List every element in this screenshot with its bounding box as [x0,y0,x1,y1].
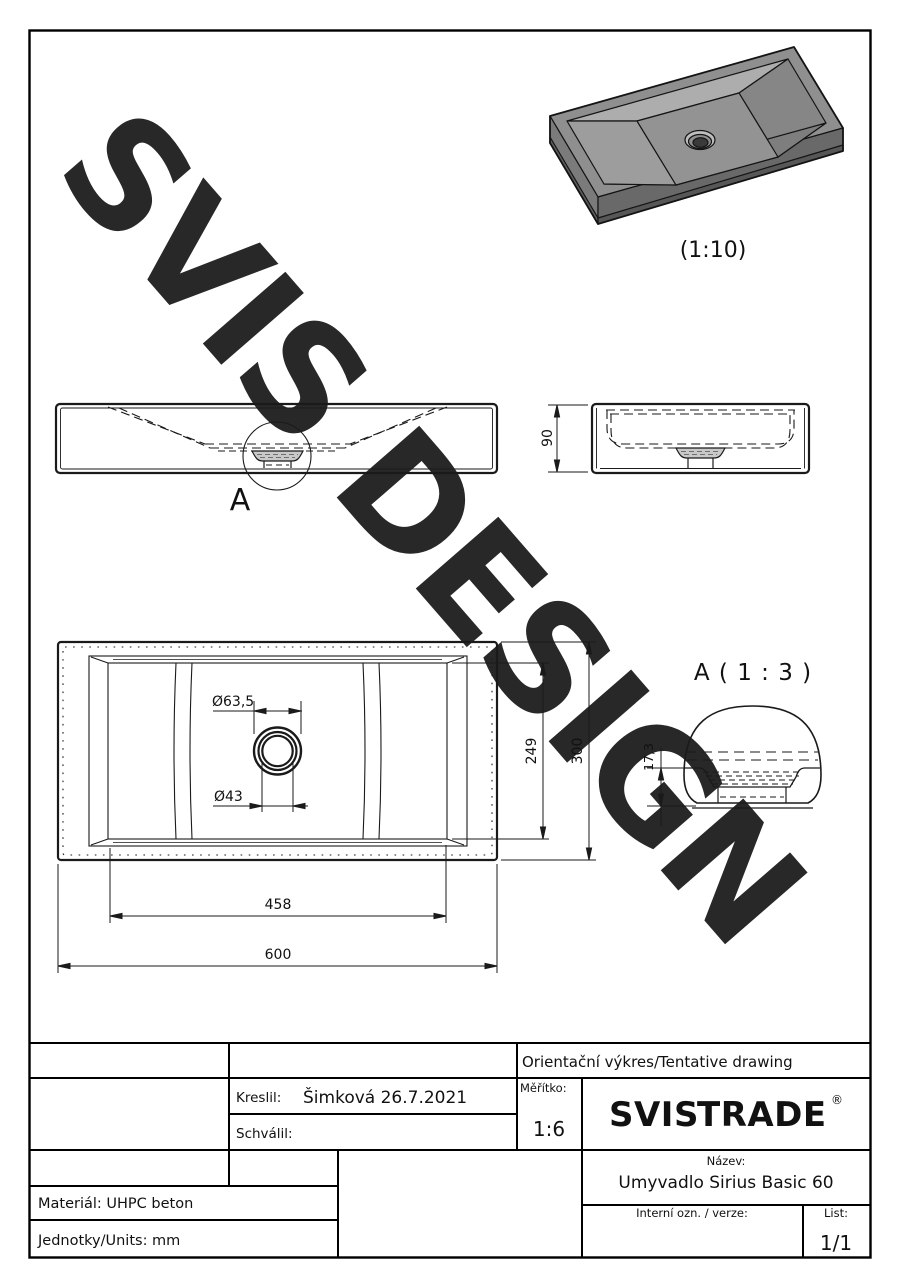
top-basin-curve [363,663,365,839]
nazev-label: Název: [707,1154,746,1168]
logo-registered-mark: ® [831,1093,843,1107]
dim-drain-inner: Ø43 [213,763,308,812]
dim-outer-width: 600 [58,864,497,973]
dim-text: 458 [265,897,292,913]
top-seal-dots [63,647,492,855]
hidden-line [119,408,210,448]
arrowhead [554,460,559,472]
top-basin-curve [174,663,176,839]
arrowhead [293,803,305,808]
detail-marker-label: A [230,483,251,518]
logo-trade: TRADE [697,1095,827,1135]
dim-90: 90 [540,405,588,472]
arrowhead [485,963,497,968]
detail-title: A ( 1 : 3 ) [694,660,812,686]
dim-text: 249 [524,738,540,765]
technical-drawing: SVIS DESIGN (1:10) [0,0,900,1288]
side-drain-recess [676,448,725,458]
kreslil-value: Šimková 26.7.2021 [303,1086,467,1108]
iso-drain-hole [693,138,708,148]
kreslil-label: Kreslil: [236,1090,281,1106]
nazev-value: Umyvadlo Sirius Basic 60 [618,1173,833,1193]
side-hidden-lines [606,410,795,448]
drain-circle-mid [259,732,297,770]
ext-line [254,701,301,734]
arrowhead [254,708,266,713]
arrowhead [289,708,301,713]
drain-circle-inner [262,736,292,766]
top-basin-curve [190,663,192,839]
top-basin-curve [379,663,381,839]
iso-scale-label: (1:10) [680,238,747,263]
meritko-label: Měřítko: [520,1081,567,1095]
list-value: 1/1 [820,1231,852,1255]
hidden-line [607,410,794,444]
top-rim-accent [113,660,442,843]
list-label: List: [824,1206,848,1220]
top-outline [58,642,497,860]
arrowhead [586,848,591,860]
dim-drain-outer: Ø63,5 [212,694,302,734]
dim-text: 300 [570,738,586,765]
dim-text: Ø43 [214,789,243,805]
title-block: Orientační výkres/Tentative drawing Kres… [29,1043,871,1258]
dim-text: 17,3 [641,743,656,771]
drain-circle-outer [254,728,301,775]
material-label: Materiál: UHPC beton [38,1196,193,1212]
drawing-sheet: SVIS DESIGN (1:10) [0,0,900,1288]
units-label: Jednotky/Units: mm [37,1233,180,1249]
logo-svis: SVIS [609,1095,699,1135]
schvalil-label: Schválil: [236,1126,293,1142]
top-corner-chamfers [91,657,464,845]
dim-inner-width: 458 [110,845,446,923]
front-drain-recess [252,451,303,461]
dim-text: 90 [540,429,556,447]
arrowhead [110,913,122,918]
arrowhead [540,827,545,839]
watermark-text: SVIS DESIGN [25,79,836,975]
dim-text: 600 [265,947,292,963]
hidden-line [611,414,790,448]
top-rim-inner [108,663,447,839]
side-inner-edge [597,408,805,469]
arrowhead [250,803,262,808]
hidden-line [108,407,205,444]
tentative-drawing-label: Orientační výkres/Tentative drawing [522,1053,793,1071]
interni-label: Interní ozn. / verze: [636,1206,748,1220]
arrowhead [58,963,70,968]
side-view: 90 [540,404,809,473]
top-rim-outer [89,656,467,846]
arrowhead [434,913,446,918]
dim-text: Ø63,5 [212,694,254,710]
arrowhead [554,405,559,417]
iso-view: (1:10) [550,47,843,263]
meritko-value: 1:6 [533,1117,565,1141]
title-block-texts: Orientační výkres/Tentative drawing Kres… [37,1053,852,1255]
